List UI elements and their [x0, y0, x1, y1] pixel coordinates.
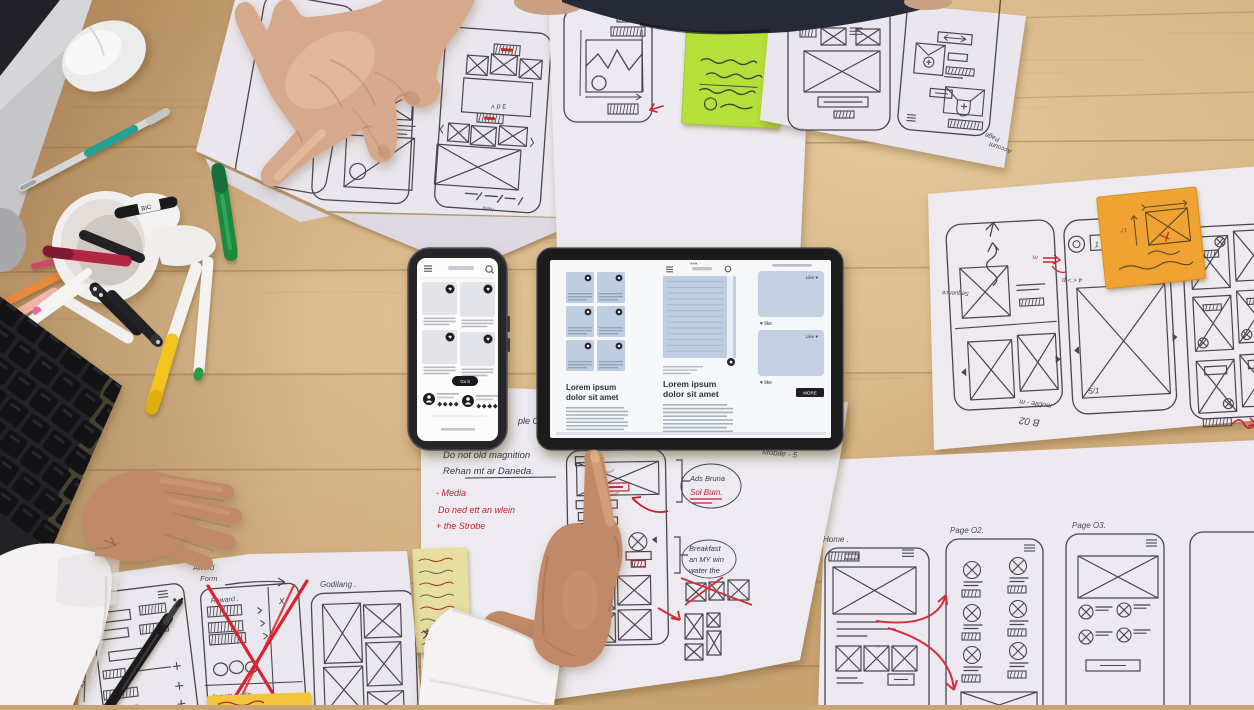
svg-text:♥: ♥: [448, 335, 452, 341]
svg-text:water the: water the: [689, 566, 720, 575]
svg-text:dolor sit amet: dolor sit amet: [663, 389, 719, 399]
svg-text:Do not old magnition: Do not old magnition: [443, 450, 530, 461]
svg-text:♥: ♥: [486, 337, 490, 343]
svg-text:+ the Strobe: + the Strobe: [436, 521, 485, 531]
svg-text:3 d v: 3 d v: [490, 102, 506, 110]
svg-text:MORE: MORE: [803, 391, 817, 396]
svg-text:Lorem ipsum: Lorem ipsum: [566, 383, 616, 392]
svg-text:4 < > p: 4 < > p: [1062, 276, 1083, 283]
svg-text:•••: •••: [690, 261, 698, 268]
svg-text:ple C: ple C: [517, 416, 540, 426]
svg-text:♥: ♥: [448, 287, 452, 293]
svg-text:dolor sit amet: dolor sit amet: [566, 393, 619, 402]
svg-text:Sequence: Sequence: [941, 289, 969, 296]
svg-text:Sol Bum.: Sol Bum.: [690, 488, 722, 497]
svg-text:1: 1: [1094, 240, 1099, 249]
svg-text:- Media: - Media: [436, 488, 466, 498]
svg-text:Page O2.: Page O2.: [950, 526, 984, 535]
svg-text:♥ like: ♥ like: [760, 380, 772, 386]
svg-text:Form: Form: [200, 574, 218, 583]
svg-text:Go it: Go it: [460, 379, 470, 384]
svg-text:17: 17: [1120, 226, 1127, 232]
svg-text::::: :::: [876, 644, 880, 650]
svg-text:an MY win: an MY win: [689, 555, 724, 564]
svg-text:Do ned ett an wlein: Do ned ett an wlein: [438, 505, 515, 515]
svg-text:Rehan mt ar Daneda.: Rehan mt ar Daneda.: [443, 466, 534, 477]
svg-text:m: m: [1032, 253, 1038, 260]
svg-text:Breakfast: Breakfast: [689, 544, 722, 553]
svg-text:Home .: Home .: [823, 535, 849, 544]
svg-text:Lorem ipsum: Lorem ipsum: [663, 379, 717, 389]
svg-text:5/1: 5/1: [1088, 386, 1100, 396]
svg-text:♥ like: ♥ like: [760, 321, 772, 327]
svg-text:♥: ♥: [486, 287, 490, 293]
svg-text:Page O3.: Page O3.: [1072, 521, 1106, 530]
svg-text:Ads Bruna: Ads Bruna: [689, 474, 725, 483]
svg-text:Like ♥: Like ♥: [806, 275, 819, 280]
svg-text:Like ♥: Like ♥: [806, 334, 819, 339]
svg-text:Godilang .: Godilang .: [320, 580, 356, 589]
